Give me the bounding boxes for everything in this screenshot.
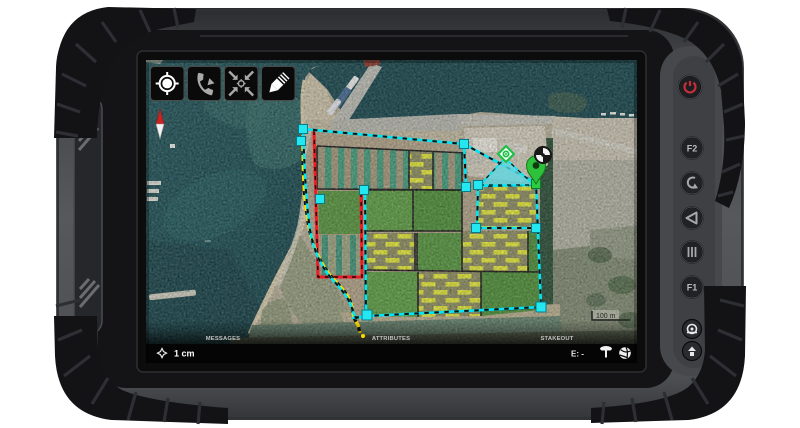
svg-text:MESSAGES: MESSAGES <box>206 336 240 342</box>
svg-text:F1: F1 <box>687 283 698 293</box>
svg-text:F2: F2 <box>687 144 698 154</box>
svg-text:ATTRIBUTES: ATTRIBUTES <box>372 336 410 342</box>
svg-text:1 cm: 1 cm <box>174 349 195 359</box>
svg-text:E: -: E: - <box>571 350 584 359</box>
svg-text:100 m: 100 m <box>596 313 616 320</box>
svg-text:STAKEOUT: STAKEOUT <box>540 336 573 342</box>
